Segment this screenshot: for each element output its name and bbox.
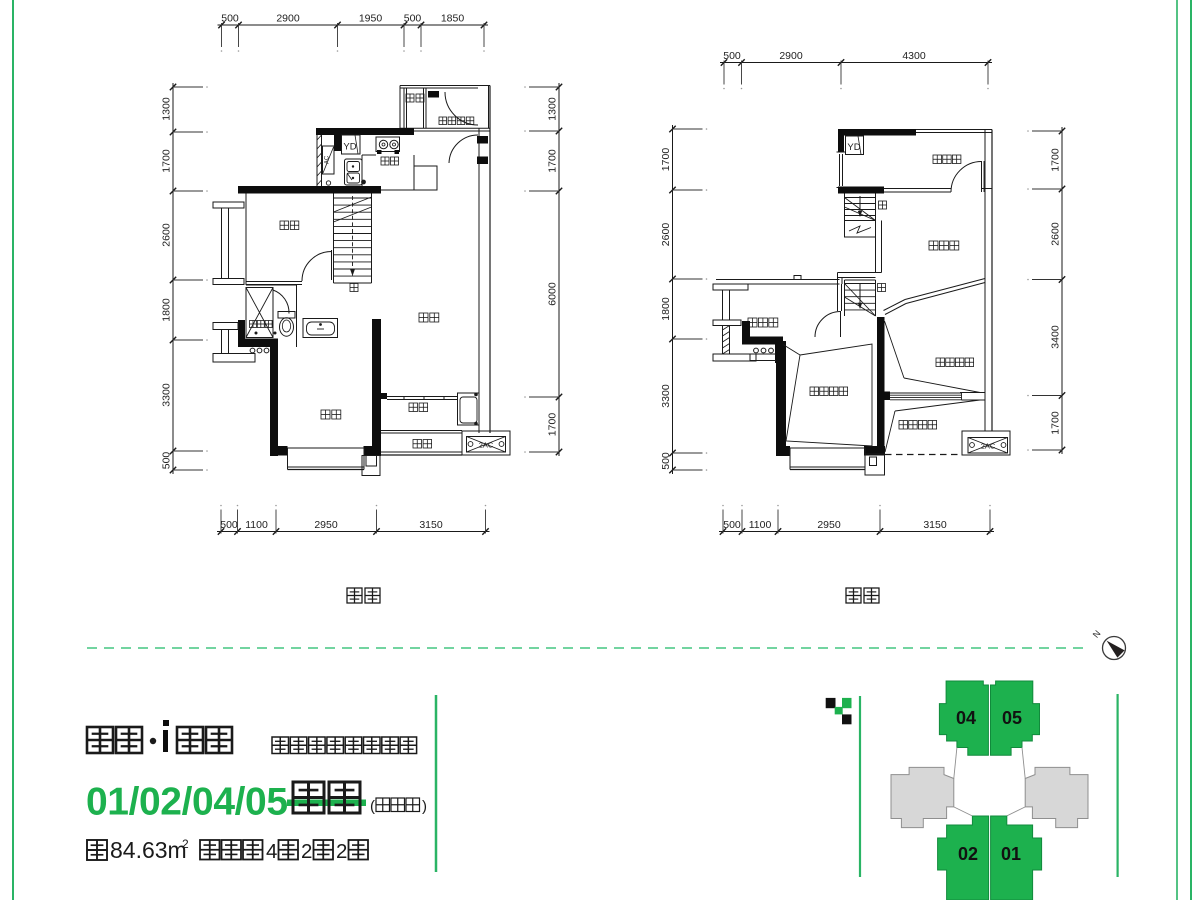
svg-text:500: 500 <box>161 452 173 470</box>
svg-text:4300: 4300 <box>902 50 926 62</box>
svg-text:2AC: 2AC <box>479 441 494 450</box>
svg-text:500: 500 <box>723 50 741 62</box>
svg-text:1300: 1300 <box>547 97 559 121</box>
svg-text:3300: 3300 <box>161 383 173 407</box>
svg-text:(: ( <box>370 798 375 815</box>
svg-text:2600: 2600 <box>1050 222 1062 246</box>
svg-text:3300: 3300 <box>660 384 672 408</box>
svg-text:500: 500 <box>723 519 741 531</box>
svg-text:2600: 2600 <box>660 223 672 247</box>
svg-text:2: 2 <box>182 837 189 851</box>
svg-text:1100: 1100 <box>749 519 772 531</box>
svg-text:1800: 1800 <box>660 297 672 321</box>
svg-text:6000: 6000 <box>547 282 559 306</box>
svg-text:1700: 1700 <box>547 149 559 173</box>
svg-text:3150: 3150 <box>419 519 443 531</box>
svg-text:500: 500 <box>220 519 238 531</box>
svg-text:1850: 1850 <box>441 13 465 25</box>
svg-text:1700: 1700 <box>660 148 672 172</box>
svg-text:YD: YD <box>847 142 860 153</box>
svg-text:05: 05 <box>1002 708 1022 728</box>
svg-text:02: 02 <box>958 844 978 864</box>
svg-text:2: 2 <box>301 840 312 863</box>
svg-text:1700: 1700 <box>161 149 173 173</box>
svg-text:01/02/04/05: 01/02/04/05 <box>86 781 288 824</box>
svg-text:2950: 2950 <box>817 519 841 531</box>
svg-text:84.63m: 84.63m <box>110 837 187 863</box>
svg-text:4: 4 <box>266 840 277 863</box>
svg-text:2900: 2900 <box>276 13 300 25</box>
svg-text:YD: YD <box>343 142 356 153</box>
svg-text:3150: 3150 <box>923 519 947 531</box>
svg-text:1700: 1700 <box>1050 411 1062 435</box>
svg-text:1100: 1100 <box>245 519 268 531</box>
svg-text:500: 500 <box>660 452 672 470</box>
svg-text:1700: 1700 <box>1050 148 1062 172</box>
svg-text:500: 500 <box>404 13 422 25</box>
svg-text:1800: 1800 <box>161 298 173 322</box>
svg-text:2600: 2600 <box>161 223 173 247</box>
svg-text:): ) <box>422 798 427 815</box>
svg-text:04: 04 <box>956 708 976 728</box>
svg-text:500: 500 <box>221 13 239 25</box>
svg-text:3400: 3400 <box>1050 325 1062 349</box>
svg-text:1700: 1700 <box>547 413 559 437</box>
svg-text:2950: 2950 <box>314 519 338 531</box>
svg-text:1300: 1300 <box>161 97 173 121</box>
svg-text:AC: AC <box>325 155 331 164</box>
svg-text:2AC: 2AC <box>981 442 996 451</box>
svg-text:01: 01 <box>1001 844 1021 864</box>
svg-text:2900: 2900 <box>779 50 803 62</box>
svg-text:2: 2 <box>336 840 347 863</box>
svg-text:1950: 1950 <box>359 13 383 25</box>
